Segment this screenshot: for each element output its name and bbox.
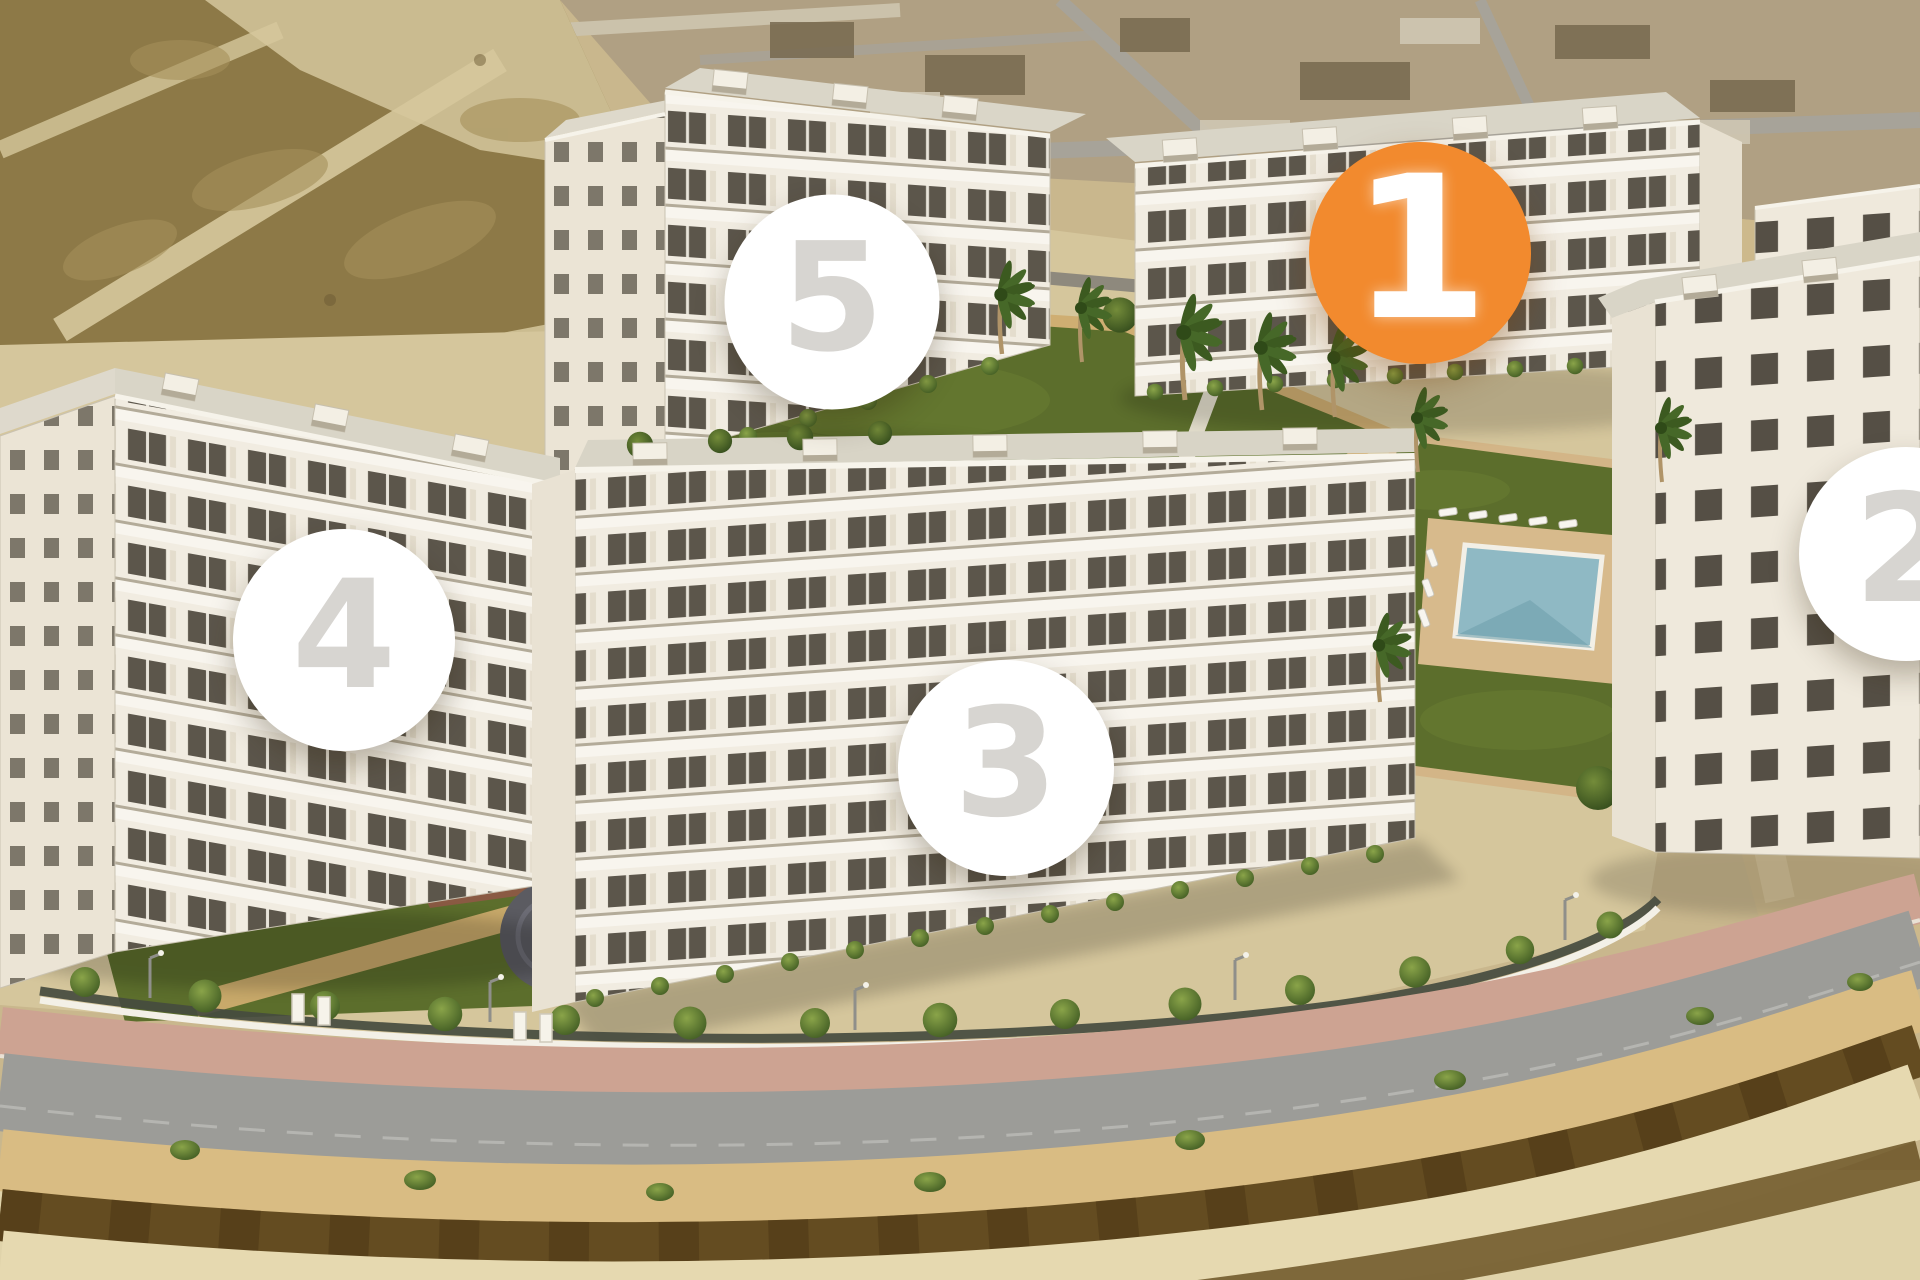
phase-marker-1-number: 1 [1351, 150, 1489, 348]
phase-marker-5-number: 5 [780, 223, 884, 373]
phase-marker-1[interactable]: 1 [1309, 142, 1531, 364]
phase-marker-3-number: 3 [954, 689, 1058, 839]
phase-marker-4[interactable]: 4 [233, 529, 455, 751]
phase-marker-5[interactable]: 5 [725, 195, 940, 410]
phase-marker-3[interactable]: 3 [898, 660, 1114, 876]
phase-marker-4-number: 4 [292, 561, 396, 711]
site-plan-stage: 1 2 3 4 5 [0, 0, 1920, 1280]
phase-marker-2-number: 2 [1854, 475, 1920, 625]
